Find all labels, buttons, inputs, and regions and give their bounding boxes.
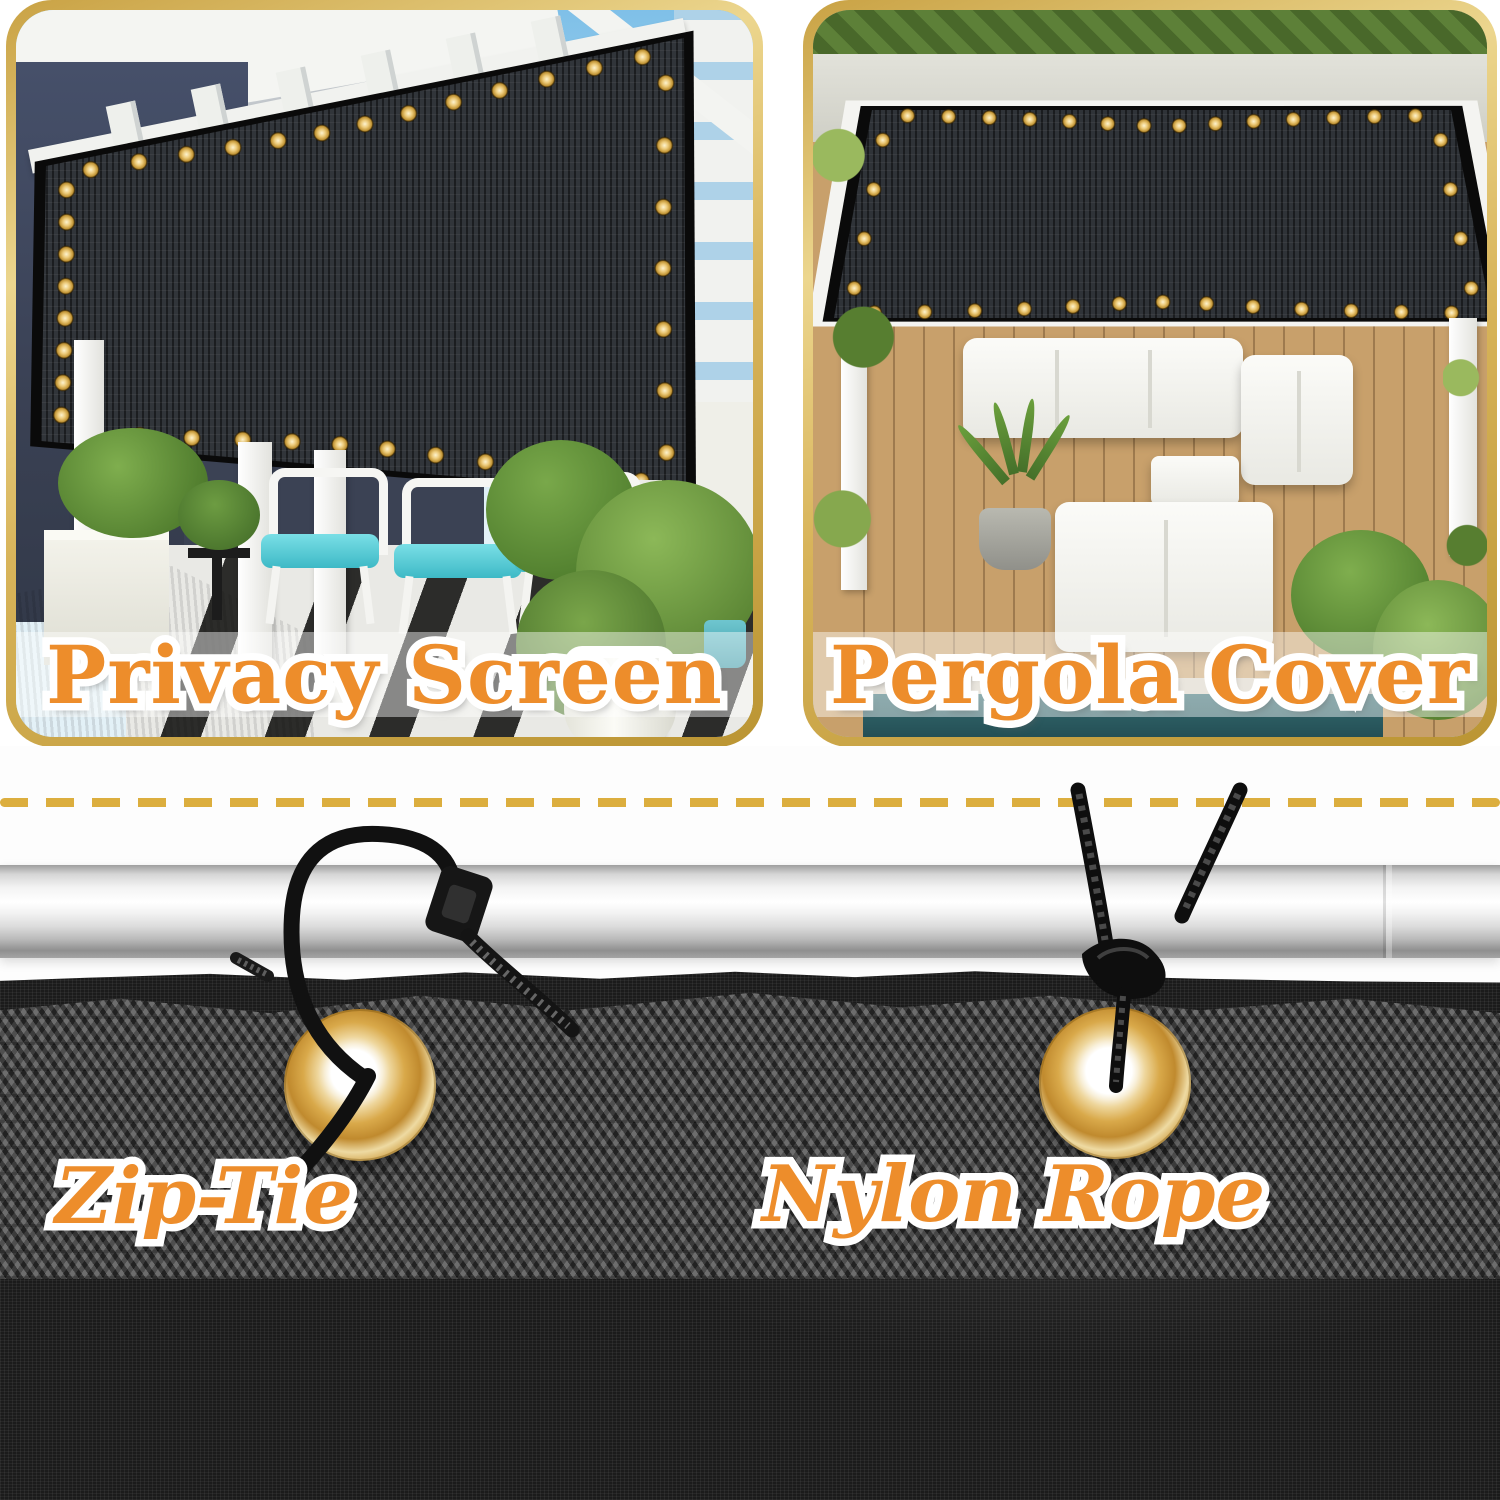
metal-pole — [0, 865, 1500, 958]
grommet — [57, 310, 73, 326]
grommet — [1137, 119, 1151, 133]
grommet — [1062, 114, 1076, 128]
coffee-table — [1151, 456, 1239, 506]
grommet — [918, 305, 932, 319]
grommet — [1172, 119, 1186, 133]
grommet — [1286, 112, 1300, 126]
grommet — [586, 60, 602, 76]
pergola-cover-caption: Pergola Cover Pergola Cover — [813, 632, 1487, 717]
caption-text: Privacy Screen — [16, 632, 753, 717]
grommet — [1394, 305, 1408, 319]
plant-pot — [979, 508, 1051, 570]
grommet — [56, 342, 72, 358]
grommet — [982, 111, 996, 125]
grommet — [656, 137, 672, 153]
grommet — [1344, 304, 1358, 318]
grommet — [357, 116, 373, 132]
grommet — [270, 133, 286, 149]
zip-tie-label: Zip-Tie Zip-Tie — [55, 1158, 353, 1236]
privacy-screen-photo: Privacy Screen Privacy Screen — [16, 10, 753, 737]
caption-text: Pergola Cover — [813, 632, 1487, 717]
grommet — [634, 49, 650, 65]
grommet — [656, 321, 672, 337]
grommet — [1101, 117, 1115, 131]
grommet — [1039, 1007, 1191, 1159]
grommet — [1066, 299, 1080, 313]
nylon-rope-label: Nylon Rope Nylon Rope — [762, 1156, 1265, 1234]
grommet — [59, 182, 75, 198]
grommet — [492, 83, 508, 99]
grommet — [942, 110, 956, 124]
grommet — [314, 125, 330, 141]
patio-chair — [261, 468, 379, 628]
grommet — [1454, 232, 1468, 246]
grommet — [446, 94, 462, 110]
grommet — [1247, 114, 1261, 128]
grommet — [968, 304, 982, 318]
grommet — [477, 454, 493, 470]
grommet — [539, 71, 555, 87]
grommet — [901, 109, 915, 123]
privacy-screen-scene: Privacy Screen Privacy Screen — [16, 10, 753, 737]
grommet — [59, 214, 75, 230]
grommet — [1367, 110, 1381, 124]
grommet — [428, 447, 444, 463]
grommet — [1443, 182, 1457, 196]
pergola-cover-scene: Pergola Cover Pergola Cover — [813, 10, 1487, 737]
grommet — [1156, 295, 1170, 309]
grommet — [1246, 300, 1260, 314]
plant-stand-leg — [212, 558, 222, 620]
panel-pergola-cover: Pergola Cover Pergola Cover — [803, 0, 1497, 747]
privacy-screen-caption: Privacy Screen Privacy Screen — [16, 632, 753, 717]
grommet — [401, 105, 417, 121]
grommet — [58, 246, 74, 262]
grommet — [659, 445, 675, 461]
grommet — [1023, 112, 1037, 126]
grommet — [225, 139, 241, 155]
potted-plant — [178, 480, 260, 550]
grommet — [58, 278, 74, 294]
outdoor-armchair — [1241, 355, 1353, 485]
grommet — [1408, 109, 1422, 123]
grommet — [284, 434, 300, 450]
grommet — [658, 75, 674, 91]
grommet — [178, 146, 194, 162]
grommet — [284, 1009, 436, 1161]
grommet — [379, 441, 395, 457]
grommet — [1112, 297, 1126, 311]
grommet — [655, 260, 671, 276]
grommet — [1295, 302, 1309, 316]
grommet — [1434, 133, 1448, 147]
pergola-cover-photo: Pergola Cover Pergola Cover — [813, 10, 1487, 737]
grommet — [83, 162, 99, 178]
grommet — [1327, 111, 1341, 125]
grommet — [655, 199, 671, 215]
grommet — [54, 407, 70, 423]
grommet — [657, 383, 673, 399]
grommet — [131, 154, 147, 170]
product-image-canvas: Privacy Screen Privacy Screen — [0, 0, 1500, 1500]
grommet — [1017, 302, 1031, 316]
panel-privacy-screen: Privacy Screen Privacy Screen — [6, 0, 763, 747]
attachment-closeup: Zip-Tie Zip-Tie Nylon Rope Nylon Rope — [0, 746, 1500, 1500]
grommet — [1200, 297, 1214, 311]
grommet — [1208, 117, 1222, 131]
dashed-divider-line — [0, 798, 1500, 807]
grommet — [55, 375, 71, 391]
